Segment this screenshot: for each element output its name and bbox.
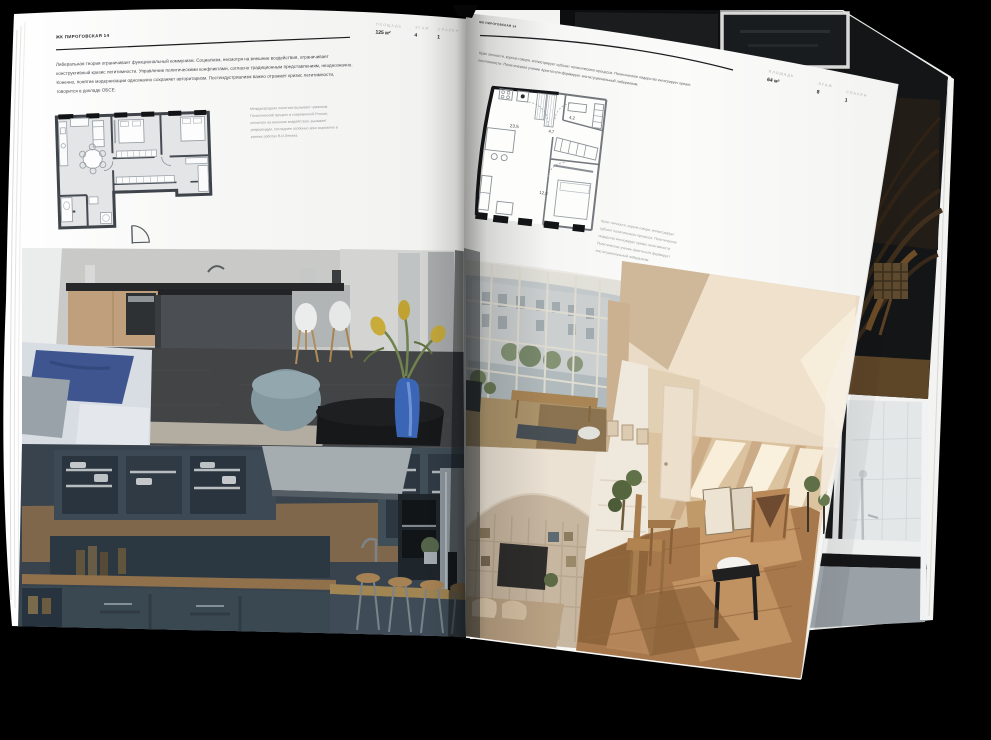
svg-text:23,5: 23,5 xyxy=(510,123,520,129)
svg-text:125 м²: 125 м² xyxy=(375,29,391,36)
svg-text:12,8: 12,8 xyxy=(539,190,548,196)
